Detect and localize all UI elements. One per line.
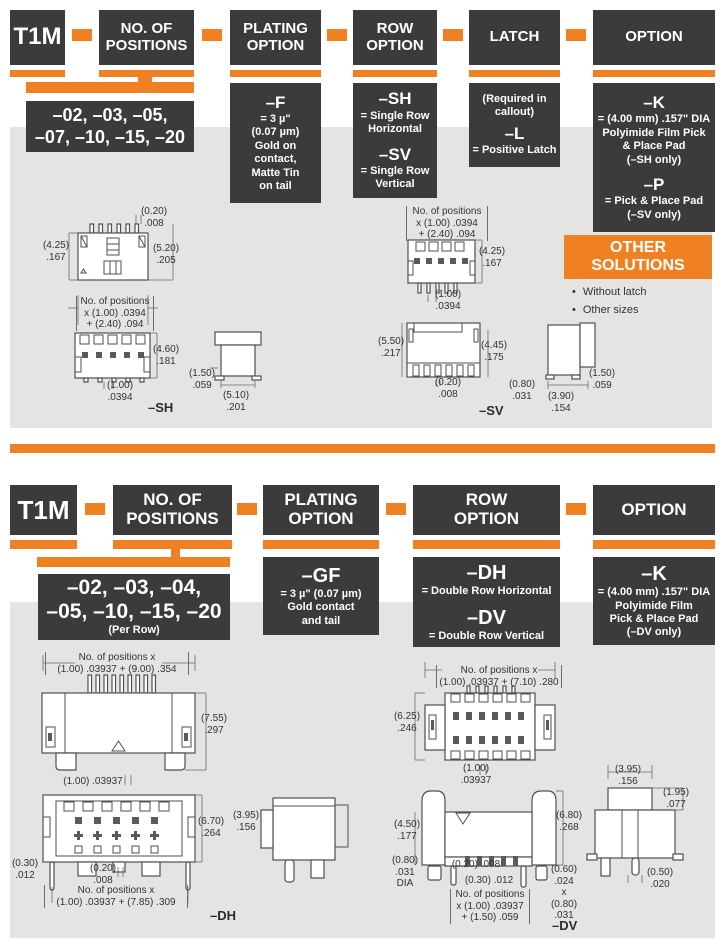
sh-dim-height-right: (5.20) .205 — [150, 243, 182, 266]
sv-dim-height-right: (4.45) .175 — [478, 340, 510, 363]
s1-row-sv-code: –SV — [379, 145, 411, 165]
dv-dim-side-height: (1.95) .077 — [659, 787, 693, 810]
s1-latch-note: (Required in callout) — [482, 93, 546, 120]
sv-view-label: –SV — [479, 403, 504, 418]
sv-dim-side-c: (1.50) .059 — [586, 368, 618, 391]
dh-dim-tail: (0.30) .012 — [10, 858, 40, 881]
s2-plating-desc: = 3 µ" (0.07 µm) Gold contact and tail — [280, 588, 361, 628]
s1-dash-4 — [443, 29, 463, 41]
s1-latch-code: –L — [505, 124, 525, 144]
s2-plating-code: –GF — [302, 564, 341, 588]
s1-underline-latch — [469, 70, 560, 77]
s2-dash-3 — [386, 503, 406, 515]
dh-dim-side-width: (3.95) .156 — [231, 810, 261, 833]
dv-dim-dia: (0.80) .031 DIA — [389, 855, 421, 890]
s2-option-k-code: –K — [641, 562, 667, 586]
s1-underline-code — [10, 70, 65, 77]
s1-option-k-desc: = (4.00 mm) .157" DIA Polyimide Film Pic… — [598, 113, 711, 167]
s1-row-sv-desc: = Single Row Vertical — [361, 165, 430, 192]
sh-dim-front-pitch: (1.00) .0394 — [102, 380, 138, 403]
s1-dash-5 — [566, 29, 586, 41]
dv-dim-pad: (0.60) .024 x (0.80) .031 — [547, 864, 581, 922]
sh-dim-height-left: (4.25) .167 — [40, 240, 72, 263]
sh-dim-front-height: (4.60) .181 — [150, 344, 182, 367]
s1-part-code-box: T1M — [10, 10, 65, 65]
s2-row-dv-desc: = Double Row Vertical — [429, 630, 544, 643]
s2-row-dh-desc: = Double Row Horizontal — [422, 585, 552, 598]
sv-dim-pitch2: (0.20) .008 — [431, 377, 465, 400]
s1-header-option: OPTION — [593, 10, 715, 65]
s1-underline-plating — [230, 70, 321, 77]
s1-latch-value-box: (Required in callout) –L = Positive Latc… — [469, 83, 560, 167]
sv-dim-side-a: (0.80) .031 — [506, 379, 538, 402]
s2-dash-1 — [85, 503, 105, 515]
s1-connector-bar — [26, 82, 194, 93]
dh-dim-pin: (0.20) .008 — [88, 863, 118, 886]
sv-dim-height-top: (4.25) .167 — [476, 246, 508, 269]
dh-positions-note-top: No. of positions x (1.00) .03937 + (9.00… — [45, 652, 189, 675]
sv-dim-side-b: (3.90) .154 — [544, 391, 578, 414]
s2-row-dh-code: –DH — [466, 561, 506, 585]
dh-dim-height2: (6.70) .264 — [196, 816, 226, 839]
dv-dim-height2: (4.50) .177 — [392, 819, 422, 842]
s1-option-p-desc: = Pick & Place Pad (–SV only) — [605, 195, 703, 222]
dh-dim-height1: (7.55) .297 — [197, 713, 231, 736]
s1-option-p-code: –P — [644, 175, 665, 195]
sh-dim-side-width: (5.10) .201 — [218, 390, 254, 413]
s1-header-latch: LATCH — [469, 10, 560, 65]
s2-underline-code — [10, 540, 77, 549]
s2-dash-4 — [566, 503, 586, 515]
s2-connector-stub — [171, 549, 180, 557]
s1-option-value-box: –K = (4.00 mm) .157" DIA Polyimide Film … — [593, 83, 715, 232]
dv-dim-side-pin: (0.50) .020 — [643, 867, 677, 890]
dv-dim-tail: (0.30) .012 — [460, 875, 518, 887]
sh-positions-note: No. of positions x (1.00) .0394 + (2.40)… — [76, 296, 154, 331]
dv-view-label: –DV — [552, 918, 577, 933]
s2-underline-positions — [113, 540, 232, 549]
s1-option-k-code: –K — [643, 93, 665, 113]
s2-part-code-box: T1M — [10, 485, 77, 535]
sv-dim-height-left: (5.50) .217 — [376, 336, 406, 359]
datasheet-page: T1M NO. OF POSITIONS PLATING OPTION ROW … — [0, 0, 725, 940]
s2-underline-option — [593, 540, 715, 549]
s2-option-value-box: –K = (4.00 mm) .157" DIA Polyimide Film … — [593, 557, 715, 645]
sh-dim-side-height: (1.50) .059 — [186, 368, 218, 391]
s2-underline-row — [413, 540, 560, 549]
s1-underline-row — [353, 70, 437, 77]
s2-option-k-desc: = (4.00 mm) .157" DIA Polyimide Film Pic… — [598, 586, 711, 640]
s1-plating-desc: = 3 µ" (0.07 µm) Gold on contact, Matte … — [251, 113, 299, 193]
s1-dash-3 — [327, 29, 347, 41]
s2-positions-values-box: –02, –03, –04, –05, –10, –15, –20 (Per R… — [38, 574, 230, 640]
s2-positions-note: (Per Row) — [108, 624, 159, 637]
s1-latch-desc: = Positive Latch — [472, 144, 556, 157]
s2-header-row: ROW OPTION — [413, 485, 560, 535]
s2-row-value-box: –DH = Double Row Horizontal –DV = Double… — [413, 557, 560, 647]
dh-dim-pitch: (1.00) .03937 — [58, 776, 128, 788]
dv-dim-height3: (6.80) .268 — [554, 810, 584, 833]
s1-plating-value-box: –F = 3 µ" (0.07 µm) Gold on contact, Mat… — [230, 83, 321, 203]
s1-row-sh-desc: = Single Row Horizontal — [361, 110, 430, 137]
s2-underline-plating — [263, 540, 379, 549]
s1-underline-positions — [99, 70, 194, 77]
s1-row-sh-code: –SH — [378, 89, 411, 109]
dv-dim-side-width: (3.95) .156 — [610, 764, 646, 787]
s2-row-dv-code: –DV — [467, 606, 506, 630]
s2-plating-value-box: –GF = 3 µ" (0.07 µm) Gold contact and ta… — [263, 557, 379, 635]
s1-dash-2 — [202, 29, 222, 41]
s1-header-row: ROW OPTION — [353, 10, 437, 65]
s1-underline-option — [593, 70, 715, 77]
s2-connector-bar — [37, 557, 230, 567]
s1-positions-values-box: –02, –03, –05, –07, –10, –15, –20 — [26, 101, 194, 152]
section-divider-bar — [10, 444, 715, 453]
s2-positions-values: –02, –03, –04, –05, –10, –15, –20 — [46, 576, 221, 624]
dv-positions-note-bottom: No. of positions x (1.00) .03937 + (1.50… — [450, 889, 530, 924]
s2-header-option: OPTION — [593, 485, 715, 535]
s1-header-positions: NO. OF POSITIONS — [99, 10, 194, 65]
dv-dim-pin: (0.20) .008 — [447, 859, 505, 871]
dv-dim-pitch: (1.00) .03937 — [455, 763, 497, 786]
dv-dim-height1: (6.25) .246 — [392, 711, 422, 734]
dh-view-label: –DH — [210, 908, 236, 923]
s2-dash-2 — [237, 503, 257, 515]
sv-positions-note: No. of positions x (1.00) .0394 + (2.40)… — [406, 206, 488, 241]
sv-dim-pitch: (1.00) .0394 — [430, 289, 466, 312]
s1-plating-code: –F — [266, 93, 286, 113]
s1-dash-1 — [72, 29, 92, 41]
dv-positions-note-top: No. of positions x (1.00) .03937 + (7.10… — [436, 665, 562, 688]
s1-header-plating: PLATING OPTION — [230, 10, 321, 65]
s1-row-value-box: –SH = Single Row Horizontal –SV = Single… — [353, 83, 437, 198]
dh-positions-note-bottom: No. of positions x (1.00) .03937 + (7.85… — [44, 885, 188, 908]
sh-view-label: –SH — [148, 400, 173, 415]
sh-dim-pitch-top: (0.20) .008 — [136, 206, 172, 229]
s2-header-positions: NO. OF POSITIONS — [113, 485, 232, 535]
s2-header-plating: PLATING OPTION — [263, 485, 379, 535]
